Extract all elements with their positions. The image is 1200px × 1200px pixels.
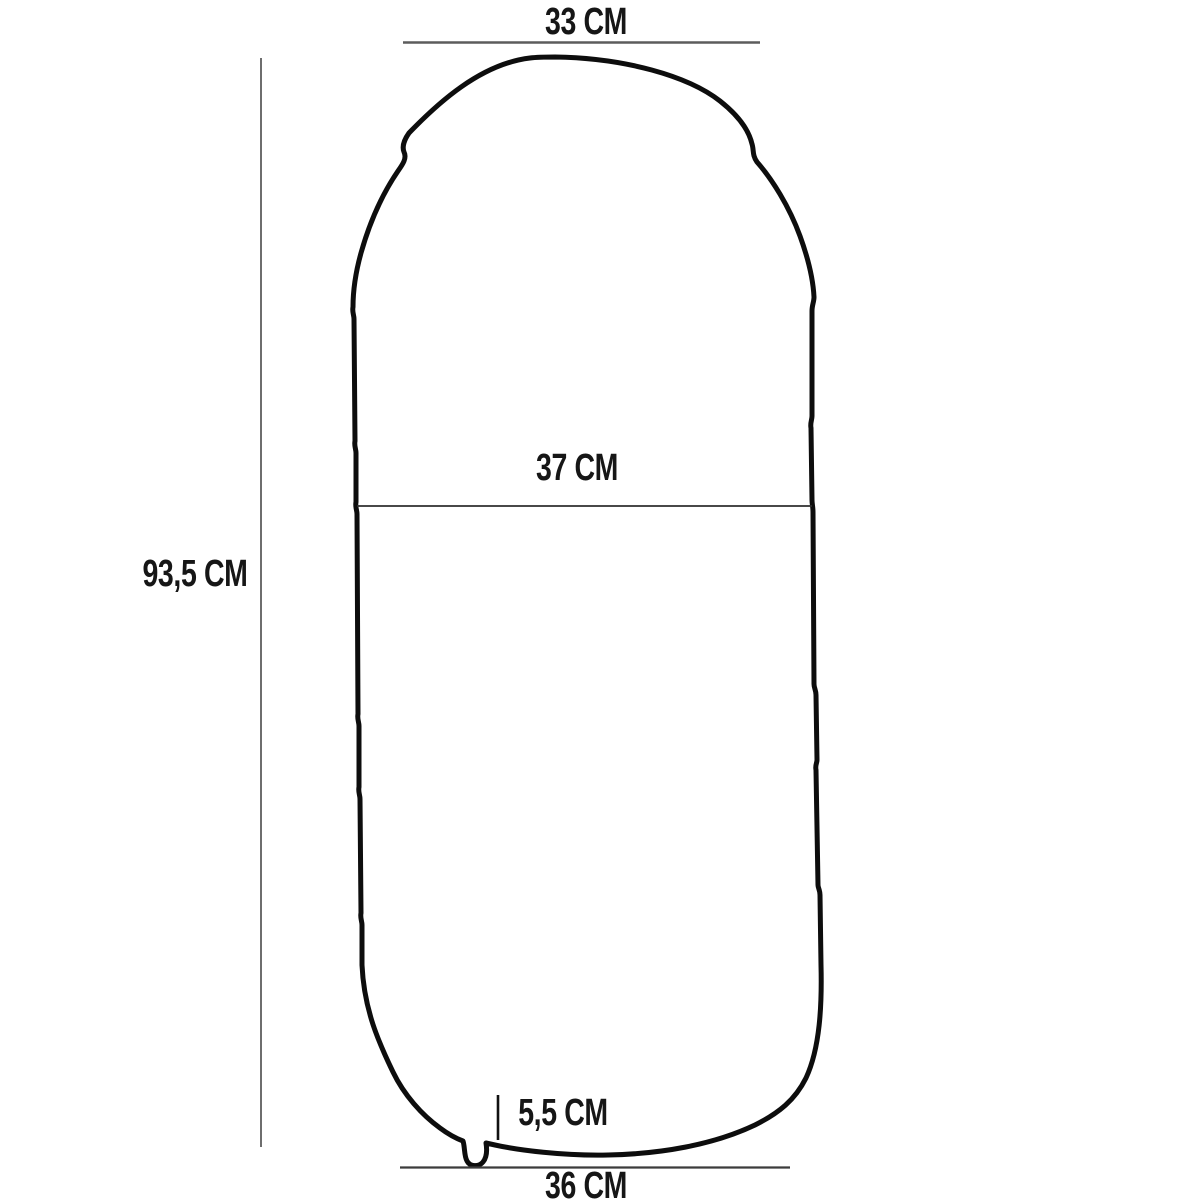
label-bottom-width: 36 CM xyxy=(545,1167,627,1200)
label-top-width: 33 CM xyxy=(545,3,627,41)
object-outline xyxy=(353,57,821,1166)
dimension-diagram: 33 CM 93,5 CM 37 CM 5,5 CM 36 CM xyxy=(0,0,1200,1200)
label-overall-height: 93,5 CM xyxy=(142,555,247,593)
label-middle-width: 37 CM xyxy=(536,449,618,487)
label-valve-offset: 5,5 CM xyxy=(518,1094,608,1132)
diagram-canvas xyxy=(0,0,1200,1200)
